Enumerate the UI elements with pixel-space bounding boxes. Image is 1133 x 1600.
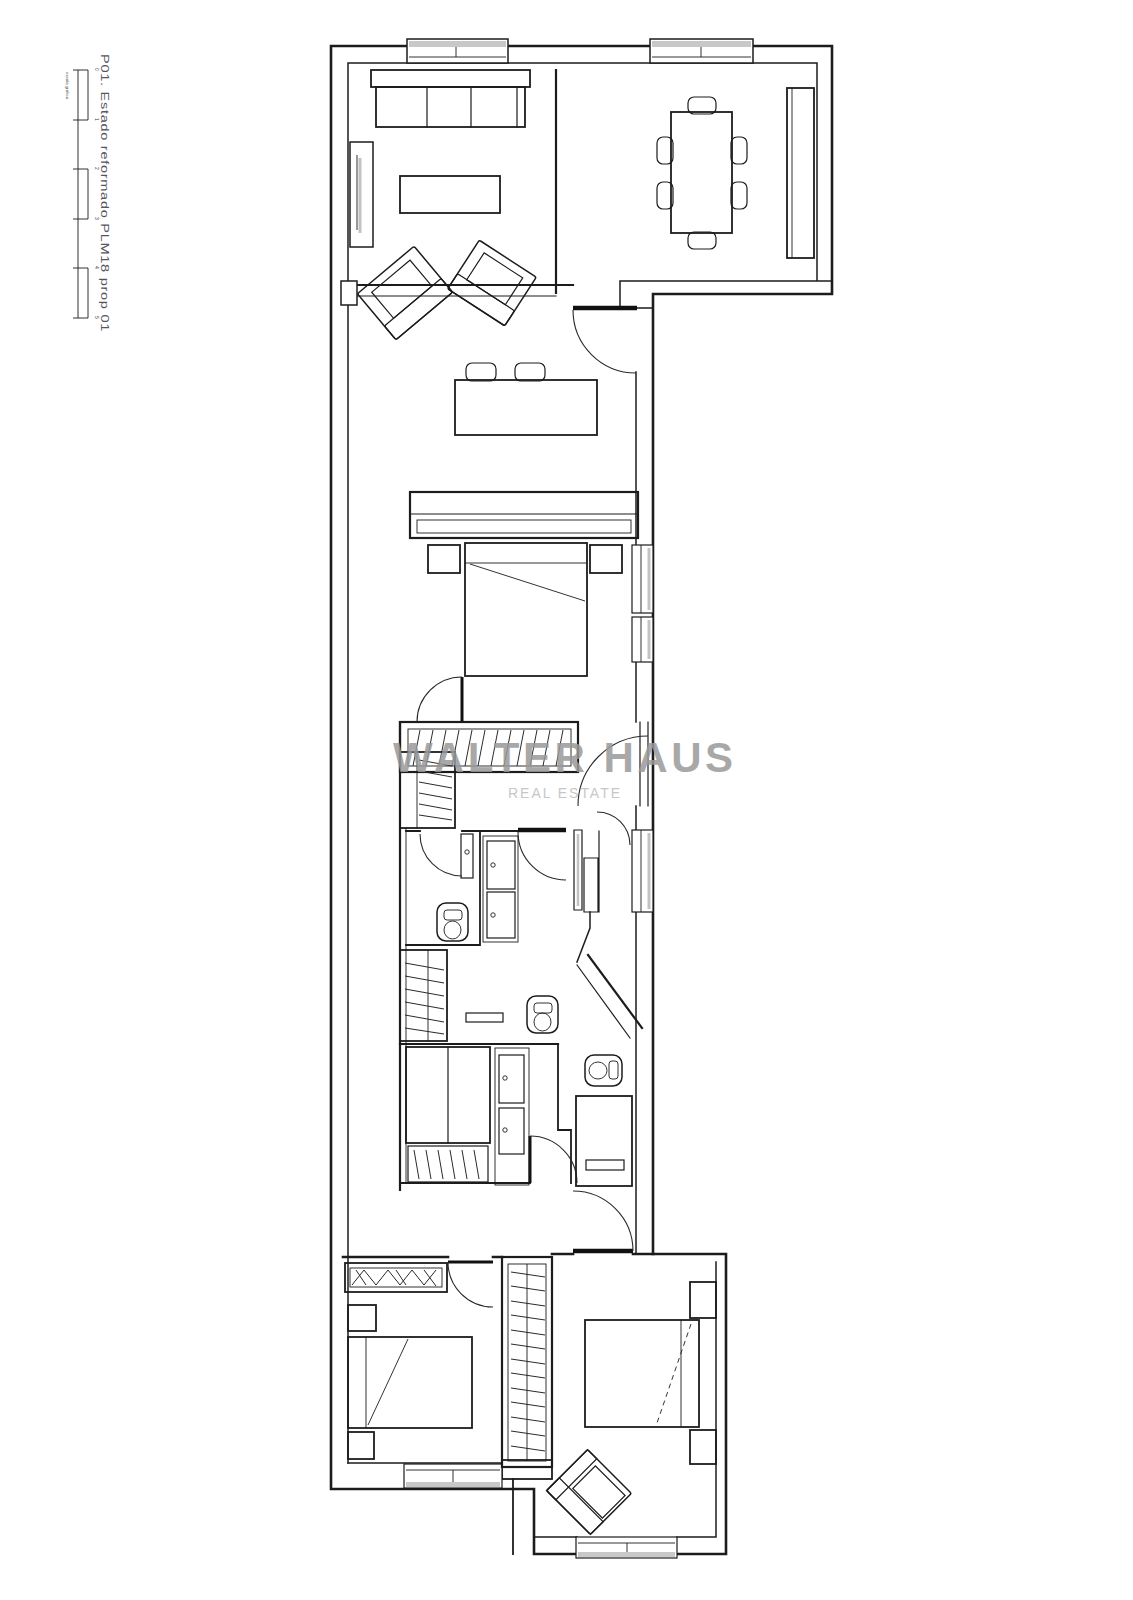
window-bedroom4	[576, 1537, 677, 1558]
door-bedroom4	[573, 1191, 633, 1251]
bedroom-1	[410, 492, 638, 676]
bed-3	[348, 1337, 472, 1428]
window-bedroom1-b	[632, 617, 653, 662]
desk-chair	[466, 363, 496, 381]
scale-bar: escala gráfica 0 1 2 3 4 5	[65, 68, 100, 319]
desk-chair	[515, 363, 545, 381]
desk	[455, 380, 597, 435]
cabinet-column	[483, 836, 518, 942]
window-bedroom1-a	[632, 545, 653, 613]
scale-label: 1	[94, 118, 100, 121]
floor-plan-svg: P01. Estado reformado PLM18 prop 01 esca…	[0, 0, 1133, 1600]
plan-title: P01. Estado reformado PLM18 prop 01	[99, 54, 110, 332]
bedroom-3	[345, 1263, 472, 1459]
living-room	[350, 70, 536, 340]
bed-4	[585, 1320, 699, 1427]
nightstand	[428, 545, 460, 573]
door-hall-cabinets	[518, 830, 566, 880]
shelf	[466, 1013, 503, 1022]
scale-label: 2	[94, 167, 100, 170]
dining-chair	[688, 232, 716, 249]
cabinet-column	[495, 1048, 529, 1185]
floor-plan-page: P01. Estado reformado PLM18 prop 01 esca…	[0, 0, 1133, 1600]
door-laundry	[530, 1136, 577, 1183]
dining-room	[657, 88, 814, 258]
wall-notch	[341, 281, 357, 305]
door-bedroom1	[417, 677, 462, 722]
window-living	[407, 39, 508, 63]
armchair	[357, 246, 452, 340]
armchair	[547, 1450, 632, 1535]
scale-label: 4	[94, 266, 100, 269]
door-bedroom3	[448, 1262, 493, 1307]
scale-caption: escala gráfica	[65, 72, 70, 100]
shoe-rack-hatch	[408, 1146, 488, 1182]
toilet-symbol	[527, 996, 558, 1033]
window-dining	[650, 39, 753, 63]
study-area	[455, 363, 597, 435]
built-in-wardrobe	[410, 492, 638, 538]
wardrobe-2door	[406, 1047, 490, 1143]
nightstand	[590, 545, 622, 573]
nightstand	[690, 1282, 716, 1318]
wardrobe-hatch	[345, 1263, 447, 1292]
armchair	[448, 240, 537, 326]
dining-chair	[731, 182, 747, 209]
nightstand	[690, 1430, 716, 1464]
dining-chair	[731, 137, 747, 164]
coffee-table	[400, 176, 500, 213]
shower	[576, 1096, 632, 1186]
door-bathroom1	[420, 834, 473, 878]
scale-label: 3	[94, 217, 100, 220]
central-closet	[502, 1257, 552, 1467]
bed-1	[465, 543, 587, 676]
radiator	[350, 142, 373, 247]
window-bathroom	[632, 830, 653, 912]
window-bedroom3	[404, 1464, 502, 1488]
watermark-subtitle: REAL ESTATE	[508, 785, 626, 801]
closet-end-wall	[502, 1460, 552, 1479]
bedroom-4	[547, 1282, 716, 1534]
scale-label: 5	[94, 316, 100, 319]
dining-table	[671, 112, 732, 233]
nightstand	[348, 1305, 376, 1331]
toilet-symbol	[437, 903, 468, 941]
sofa	[371, 70, 530, 127]
nightstand	[348, 1432, 374, 1459]
sideboard	[787, 88, 814, 258]
toilet-symbol	[585, 1055, 622, 1086]
watermark-title: WALTER HAUS	[393, 734, 733, 781]
closet-shelves-2	[400, 950, 447, 1041]
door-entrance-hall	[573, 308, 637, 373]
scale-label: 0	[94, 68, 100, 71]
